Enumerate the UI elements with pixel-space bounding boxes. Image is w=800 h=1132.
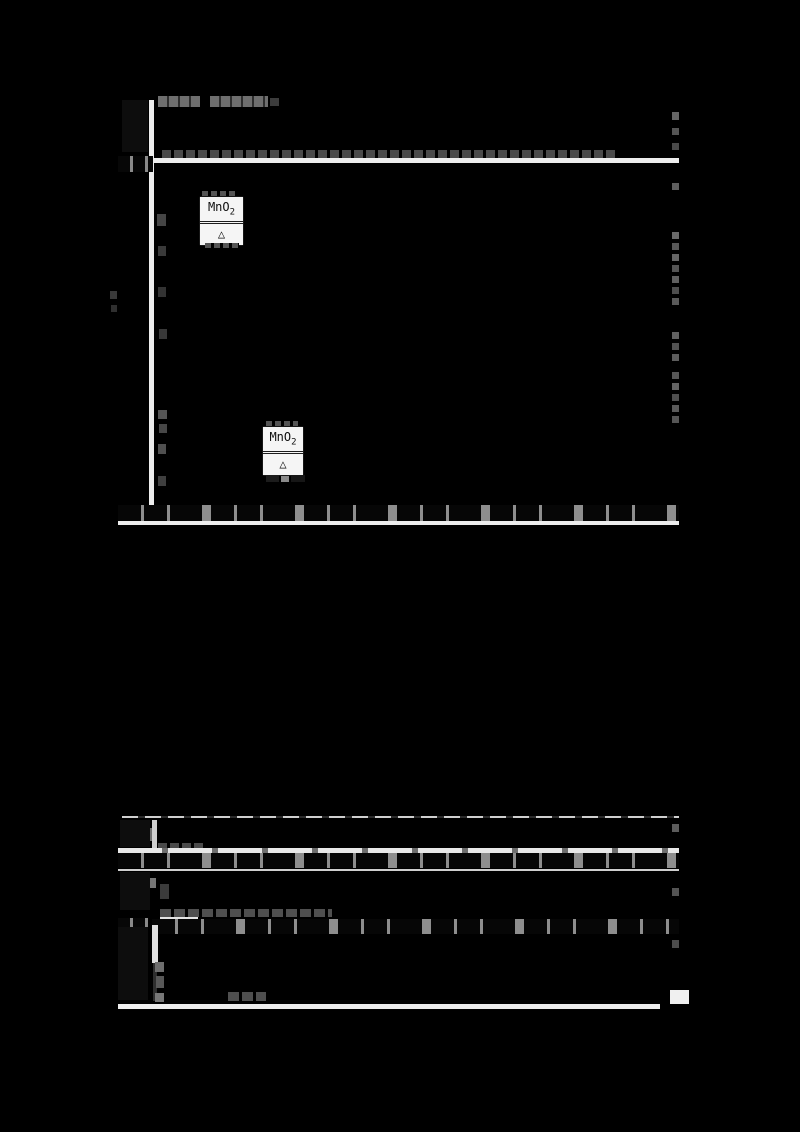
faint-glyph (150, 878, 156, 888)
clipped-glyph (672, 394, 679, 401)
reaction-condition-box: MnO2 △ (263, 427, 303, 475)
answer-blank-highlight (670, 990, 689, 1004)
clipped-glyph (672, 888, 679, 896)
scan-artifact (266, 475, 279, 482)
bottom-table-row4-band (152, 919, 679, 934)
faint-glyph (158, 246, 166, 256)
faint-glyph (110, 291, 117, 299)
faint-glyph (158, 444, 166, 454)
top-table-bottom-border (118, 521, 679, 525)
bottom-table-top-border (122, 816, 679, 818)
faint-glyph (155, 993, 164, 1002)
clipped-glyph (672, 276, 679, 283)
top-table-row2-label (118, 156, 153, 172)
clipped-glyph (672, 824, 679, 832)
faint-glyph (111, 305, 117, 312)
bottom-table-row1-label (120, 820, 150, 847)
clipped-glyph (672, 332, 679, 339)
redacted-text-fragment (228, 992, 266, 1001)
clipped-glyph (672, 287, 679, 294)
clipped-glyph (672, 354, 679, 361)
bottom-table-row-divider (118, 869, 679, 871)
faint-glyph (156, 976, 164, 988)
faint-glyph (159, 424, 167, 433)
clipped-glyph (672, 183, 679, 190)
scan-artifact (291, 475, 305, 482)
scan-artifact (266, 421, 298, 426)
clipped-glyph (672, 416, 679, 423)
clipped-glyph (672, 112, 679, 120)
scan-artifact (281, 476, 289, 482)
faint-glyph (160, 884, 169, 899)
clipped-glyph (672, 298, 679, 305)
clipped-glyph (672, 405, 679, 412)
clipped-glyph (672, 383, 679, 390)
clipped-glyph (672, 143, 679, 150)
clipped-glyph (672, 372, 679, 379)
clipped-glyph (672, 232, 679, 239)
heading-fragment (270, 98, 279, 106)
bottom-table-keypoint-row (118, 853, 679, 868)
top-table-row1-label (122, 100, 148, 152)
faint-glyph (155, 962, 164, 972)
bottom-table-row4-label (118, 927, 148, 1000)
faint-glyph (158, 476, 166, 486)
bottom-table-column-divider (152, 925, 158, 963)
clipped-glyph (672, 265, 679, 272)
bottom-table-row4-label-top (118, 918, 148, 927)
faint-glyph (159, 329, 167, 339)
faint-glyph (158, 410, 167, 419)
top-table-row-divider (152, 158, 679, 163)
clipped-glyph (672, 254, 679, 261)
heat-symbol: △ (263, 454, 303, 475)
faint-glyph (157, 214, 166, 226)
catalyst-formula: MnO2 (200, 197, 243, 224)
clipped-glyph (672, 128, 679, 135)
reaction-condition-box: MnO2 △ (200, 197, 243, 245)
catalyst-formula: MnO2 (263, 427, 303, 454)
bottom-table-column-divider (152, 820, 157, 848)
clipped-glyph (672, 243, 679, 250)
top-table-heading-fragment (210, 96, 268, 107)
faint-glyph (158, 287, 166, 297)
redacted-text-line (160, 909, 332, 917)
bottom-table-row3-label (120, 872, 150, 910)
clipped-glyph (672, 343, 679, 350)
redacted-text-line (162, 150, 617, 158)
scan-artifact (205, 243, 239, 248)
scan-artifact (202, 191, 238, 196)
clipped-glyph (672, 940, 679, 948)
top-table-summary-row (118, 505, 679, 521)
top-table-heading-fragment (158, 96, 200, 107)
worksheet-page: MnO2 △ MnO2 △ (0, 0, 800, 1132)
bottom-table-bottom-border (118, 1004, 660, 1009)
